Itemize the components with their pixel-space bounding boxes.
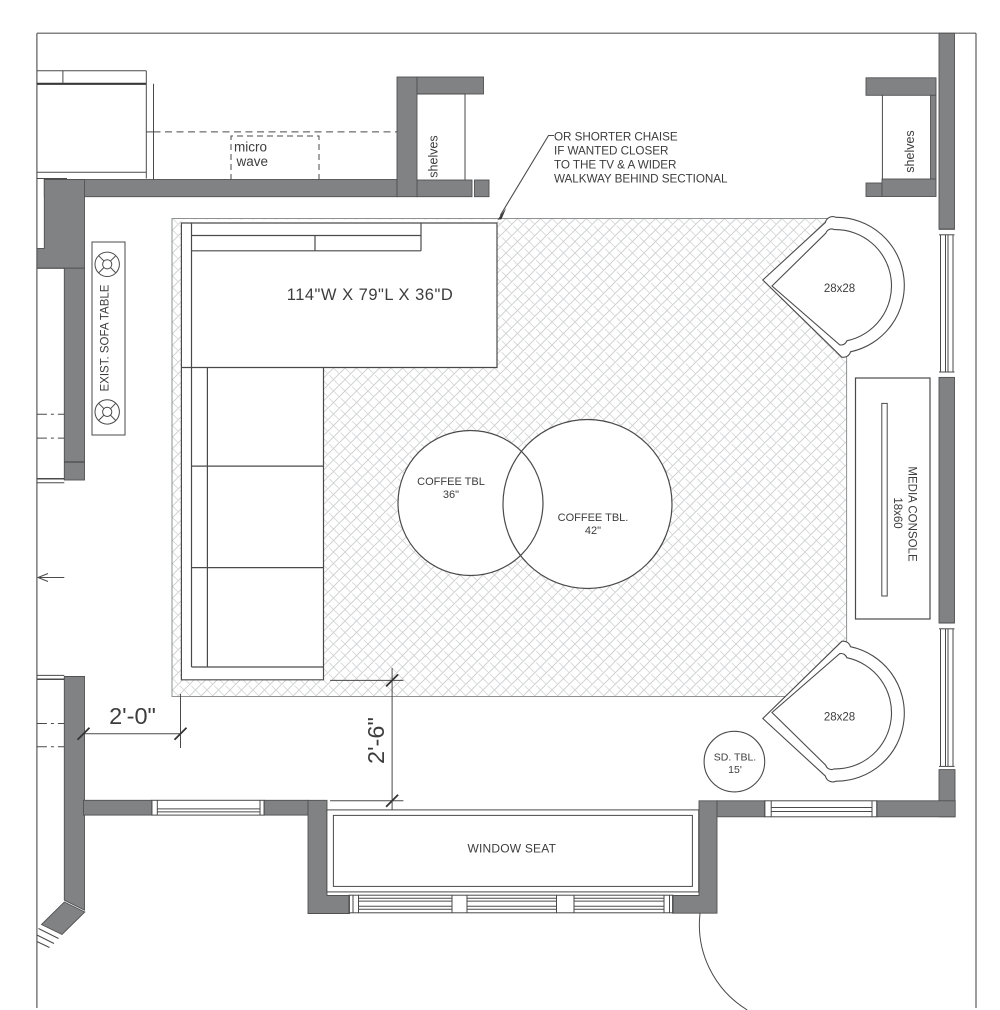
svg-text:42": 42" <box>585 525 601 537</box>
svg-text:COFFEE TBL.: COFFEE TBL. <box>558 512 629 524</box>
svg-text:114"W X 79"L X 36"D: 114"W X 79"L X 36"D <box>287 286 453 304</box>
svg-text:2'-6": 2'-6" <box>363 717 389 764</box>
svg-text:28x28: 28x28 <box>824 283 855 295</box>
svg-text:COFFEE TBL: COFFEE TBL <box>417 476 485 488</box>
svg-text:36": 36" <box>443 489 459 501</box>
svg-text:WINDOW SEAT: WINDOW SEAT <box>467 842 556 856</box>
svg-text:28x28: 28x28 <box>824 712 855 724</box>
svg-text:SD. TBL.: SD. TBL. <box>714 752 756 764</box>
svg-text:TO THE TV & A WIDER: TO THE TV & A WIDER <box>554 159 676 172</box>
svg-text:MEDIA CONSOLE: MEDIA CONSOLE <box>906 466 918 562</box>
svg-text:WALKWAY BEHIND SECTIONAL: WALKWAY BEHIND SECTIONAL <box>554 173 728 186</box>
svg-text:shelves: shelves <box>903 130 917 172</box>
svg-text:micro: micro <box>234 140 267 155</box>
svg-text:2'-0": 2'-0" <box>109 703 156 729</box>
svg-text:wave: wave <box>236 154 269 169</box>
svg-text:shelves: shelves <box>427 135 441 177</box>
svg-text:OR SHORTER CHAISE: OR SHORTER CHAISE <box>554 131 678 144</box>
svg-text:IF WANTED CLOSER: IF WANTED CLOSER <box>554 145 668 158</box>
svg-text:15': 15' <box>728 764 742 776</box>
svg-text:EXIST. SOFA TABLE: EXIST. SOFA TABLE <box>100 284 112 391</box>
svg-text:18x60: 18x60 <box>891 497 903 528</box>
